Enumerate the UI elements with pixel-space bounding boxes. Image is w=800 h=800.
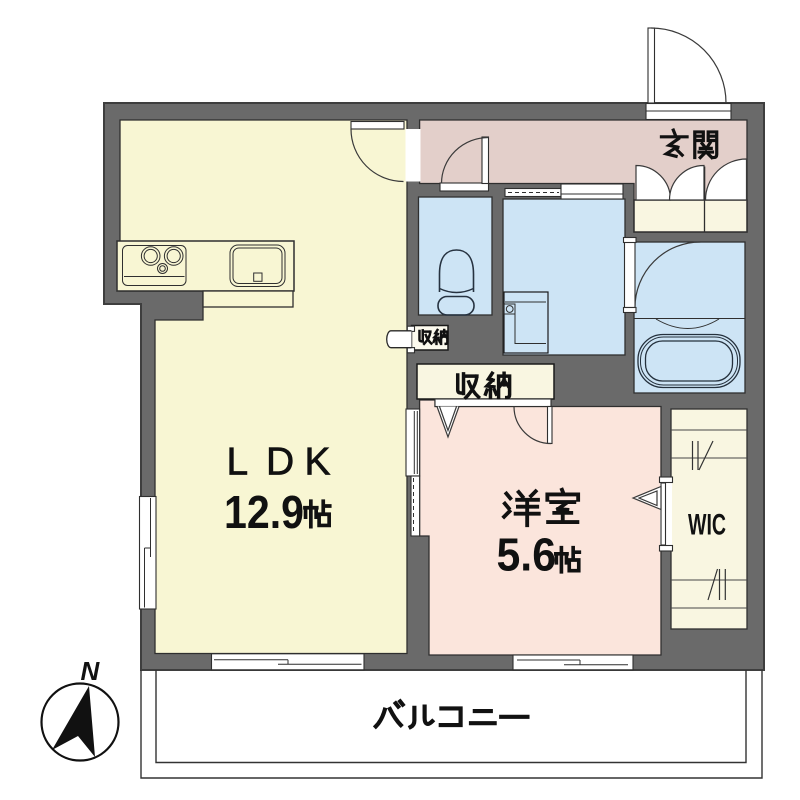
- svg-text:WIC: WIC: [688, 509, 726, 542]
- svg-text:L: L: [227, 441, 249, 484]
- svg-text:K: K: [305, 441, 331, 484]
- svg-text:5.6: 5.6: [497, 529, 557, 581]
- svg-text:N: N: [81, 656, 101, 686]
- svg-text:12.9: 12.9: [224, 486, 304, 538]
- svg-text:D: D: [266, 441, 294, 484]
